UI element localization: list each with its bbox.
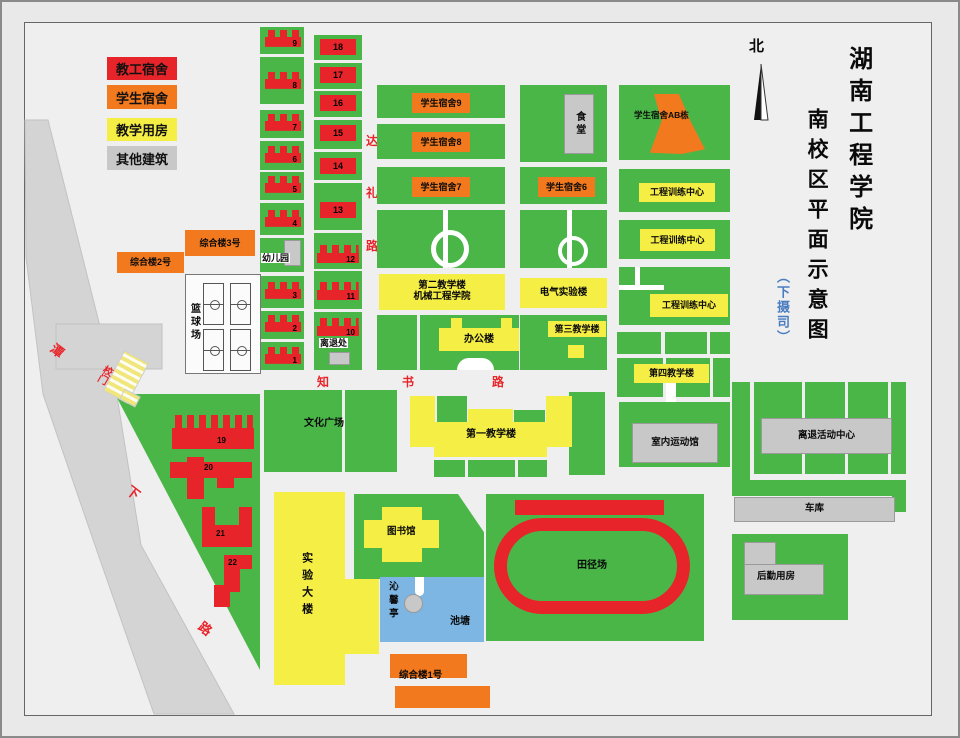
block-teach1-south	[468, 460, 515, 477]
pond-label: 池塘	[450, 616, 470, 628]
staff-dorm-10: 10	[317, 318, 359, 336]
staff-dorm-16: 16	[320, 95, 356, 111]
block-teach1-east	[569, 392, 605, 475]
electrical-lab-building: 电气实验楼	[520, 278, 607, 308]
pavilion-label: 沁馨亭	[386, 581, 397, 622]
canteen-building: 食堂	[564, 94, 594, 154]
roundabout	[431, 230, 469, 268]
legend-item-other: 其他建筑	[107, 146, 177, 170]
office-building: 办公楼	[439, 328, 519, 351]
legend-item-teaching: 教学用房	[107, 118, 177, 141]
staff-dorm-12: 12	[317, 245, 359, 263]
building-number: 10	[346, 328, 355, 337]
map-title-note: （下摄司）	[774, 270, 789, 400]
grandstand	[515, 500, 664, 515]
staff-dorm-17: 17	[320, 67, 356, 83]
staff-dorm-13: 13	[320, 202, 356, 218]
building-number: 19	[217, 436, 226, 445]
block-teach4-n	[617, 332, 661, 354]
block-teach1-infill	[514, 410, 545, 422]
teaching-1-wing	[546, 396, 572, 423]
retire-office-label: 离退处	[319, 338, 348, 348]
basketball-court-area: 篮球场	[185, 274, 261, 374]
lab-building-wing	[345, 579, 379, 654]
staff-dorm-1: 1	[265, 347, 301, 364]
building-number: 5	[293, 185, 297, 194]
basketball-label: 篮球场	[188, 303, 200, 342]
staff-dorm-14: 14	[320, 158, 356, 174]
legend-label: 教工宿舍	[116, 59, 168, 78]
building-number: 14	[333, 161, 343, 171]
building-number: 11	[347, 292, 355, 301]
path	[666, 383, 676, 402]
complex-3-building: 综合楼3号	[185, 230, 255, 256]
retire-activity-center: 离退活动中心	[761, 418, 892, 454]
building-number: 1	[293, 356, 297, 365]
student-dorm-6: 学生宿舍6	[538, 177, 595, 197]
teach2-line2: 机械工程学院	[413, 292, 470, 303]
building-number: 3	[293, 291, 297, 300]
block-retire	[891, 382, 906, 474]
building-number: 9	[293, 39, 297, 48]
building-number: 21	[216, 529, 225, 538]
court	[230, 329, 251, 371]
block-roundabout-west	[377, 210, 505, 268]
block-culture-square	[264, 390, 342, 472]
athletic-track: 田径场	[494, 518, 690, 614]
building-number: 18	[333, 42, 343, 52]
lab-building-label: 实验大楼	[300, 552, 313, 620]
north-arrow-icon	[748, 62, 776, 124]
training-center-2: 工程训练中心	[640, 229, 715, 251]
semicircle-path	[457, 358, 494, 370]
staff-dorm-7: 7	[265, 114, 301, 131]
teaching-building-1: 第一教学楼	[410, 422, 572, 447]
building-number: 20	[204, 463, 213, 472]
map-title-main: 湖南工程学院	[844, 46, 872, 258]
culture-square-label: 文化广场	[304, 418, 344, 430]
logistics-label: 后勤用房	[757, 572, 795, 583]
building-number: 7	[293, 123, 297, 132]
teaching-2-lines: 第二教学楼机械工程学院	[413, 281, 470, 303]
building-number: 2	[293, 324, 297, 333]
pond: 沁馨亭 池塘	[380, 577, 484, 642]
map-title-sub: 南校区平面示意图	[804, 108, 828, 374]
building-number: 15	[333, 128, 343, 138]
teaching-1-wing	[410, 396, 435, 423]
staff-dorm-6: 6	[265, 146, 301, 163]
training-center-3: 工程训练中心	[650, 294, 728, 317]
complex-1-building-s	[395, 686, 490, 708]
staff-dorm-19: 19	[172, 415, 254, 449]
block-teach1-south	[518, 460, 547, 477]
legend-label: 其他建筑	[116, 149, 168, 168]
staff-dorm-15: 15	[320, 125, 356, 141]
court	[230, 283, 251, 325]
legend-item-student-dorm: 学生宿舍	[107, 85, 177, 109]
kindergarten-label: 幼儿园	[261, 253, 290, 263]
teaching-building-3: 第三教学楼	[548, 321, 606, 337]
court	[203, 283, 224, 325]
teaching-building-2: 第二教学楼机械工程学院	[379, 274, 505, 310]
staff-dorm-4: 4	[265, 210, 301, 227]
building-number: 6	[293, 155, 297, 164]
staff-dorm-18: 18	[320, 39, 356, 55]
campus-map: 教工宿舍 学生宿舍 教学用房 其他建筑 湖南工程学院 南校区平面示意图 （下摄司…	[0, 0, 960, 738]
track-label: 田径场	[577, 560, 607, 572]
staff-dorm-22-low	[214, 585, 230, 607]
block-teach1-infill	[437, 396, 467, 422]
staff-dorm-21	[202, 525, 252, 547]
staff-dorm-20-wing	[187, 457, 204, 499]
roundabout	[558, 236, 588, 266]
pavilion-building	[404, 594, 423, 613]
zhishu-road-char: 书	[402, 376, 414, 390]
legend-item-staff-dorm: 教工宿舍	[107, 57, 177, 80]
path	[619, 285, 664, 290]
staff-dorm-2: 2	[265, 315, 301, 332]
block-roundabout-east	[520, 210, 607, 268]
block-teach4-n	[710, 332, 730, 354]
building-number: 17	[333, 70, 343, 80]
staff-dorm-5: 5	[265, 176, 301, 193]
zhishu-road-char: 路	[492, 376, 504, 390]
teaching-1-base	[434, 447, 547, 457]
building-number: 4	[293, 219, 297, 228]
block-teach4-n	[665, 332, 707, 354]
building-number: 8	[293, 81, 297, 90]
indoor-gym-building: 室内运动馆	[632, 423, 718, 463]
complex-1-label: 综合楼1号	[399, 671, 442, 682]
staff-dorm-11: 11	[317, 282, 359, 300]
student-dorm-8: 学生宿舍8	[412, 132, 470, 152]
court	[203, 329, 224, 371]
legend-label: 学生宿舍	[116, 88, 168, 107]
legend-label: 教学用房	[116, 120, 168, 139]
block-teach4	[713, 358, 730, 397]
block-teach1-south	[434, 460, 465, 477]
training-center-1: 工程训练中心	[639, 183, 715, 202]
staff-dorm-3: 3	[265, 282, 301, 299]
teaching-3-stem	[568, 345, 584, 358]
pond-path	[415, 577, 424, 596]
block-retire-west	[732, 382, 750, 492]
building-number: 12	[346, 255, 355, 264]
complex-2-building: 综合楼2号	[117, 252, 184, 273]
student-dorm-9: 学生宿舍9	[412, 93, 470, 113]
library-label: 图书馆	[387, 527, 416, 538]
staff-dorm-20-wing	[217, 472, 234, 488]
student-dorm-AB-label: 学生宿舍AB栋	[634, 111, 689, 121]
staff-dorm-9: 9	[265, 30, 301, 47]
block-culture-east	[345, 390, 397, 472]
retire-office-building	[329, 352, 350, 365]
building-number: 22	[228, 558, 237, 567]
north-label: 北	[749, 38, 764, 55]
staff-dorm-8: 8	[265, 72, 301, 89]
zhishu-road-char: 知	[317, 376, 329, 390]
block-office-west	[377, 315, 417, 370]
block-garage-n	[732, 480, 905, 496]
building-number: 16	[333, 98, 343, 108]
teaching-1-wing	[468, 409, 513, 423]
teaching-building-4: 第四教学楼	[634, 364, 709, 383]
student-dorm-7: 学生宿舍7	[412, 177, 470, 197]
garage-building: 车库	[734, 497, 895, 522]
building-number: 13	[333, 205, 343, 215]
